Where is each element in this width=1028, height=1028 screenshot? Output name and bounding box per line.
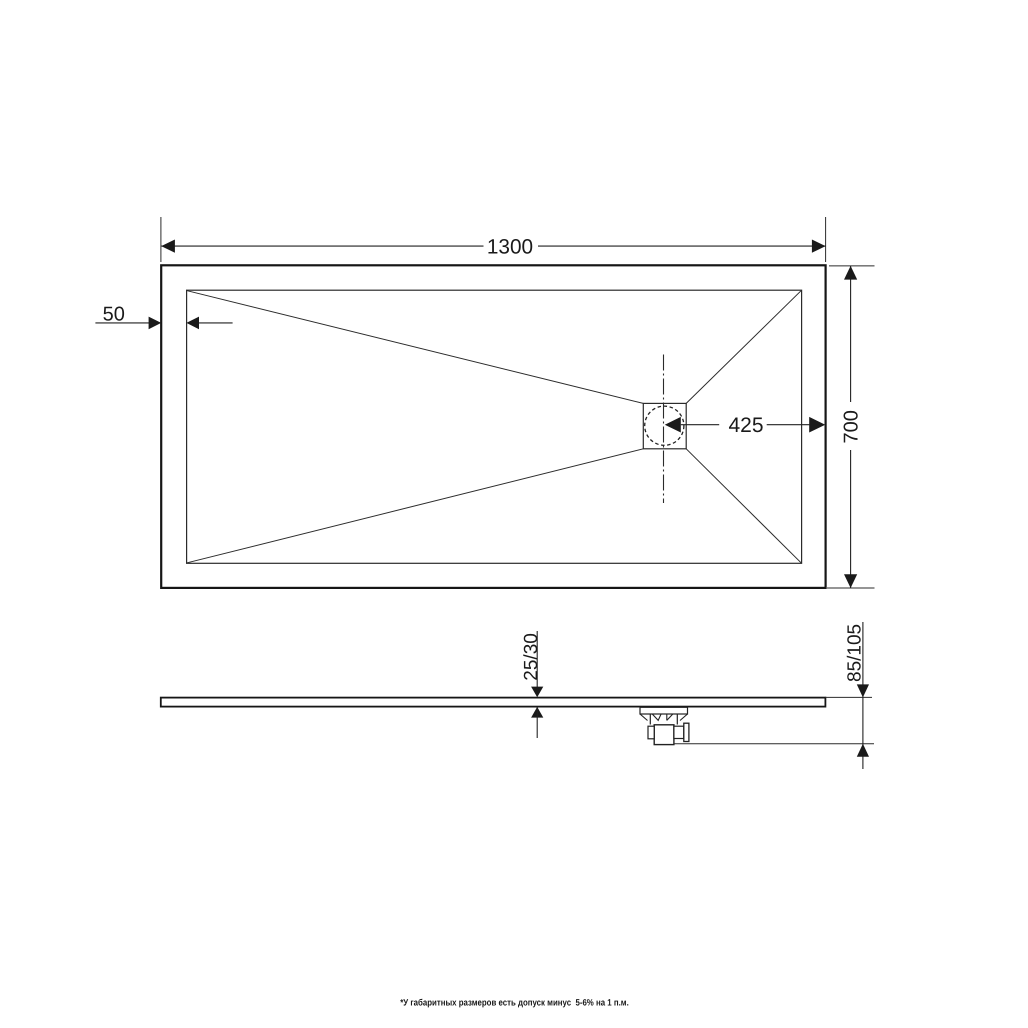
svg-text:25/30: 25/30 (521, 633, 542, 681)
svg-text:700: 700 (841, 410, 863, 443)
svg-text:85/105: 85/105 (845, 624, 866, 682)
svg-text:50: 50 (103, 304, 125, 326)
svg-text:*У габаритных размеров есть до: *У габаритных размеров есть допуск минус… (400, 998, 629, 1008)
svg-text:425: 425 (728, 414, 763, 437)
svg-text:1300: 1300 (487, 236, 533, 259)
